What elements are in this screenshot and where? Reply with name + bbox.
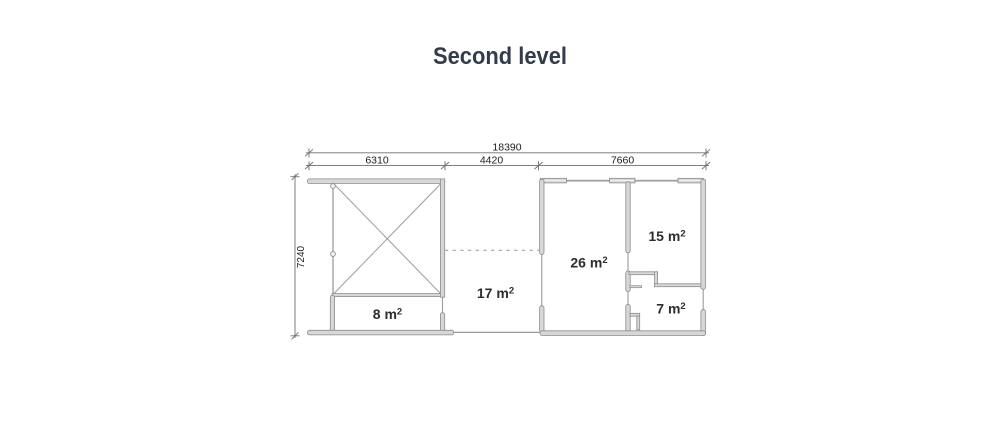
svg-text:18390: 18390 — [492, 142, 521, 154]
svg-text:7660: 7660 — [611, 154, 635, 166]
svg-text:6310: 6310 — [365, 154, 389, 166]
svg-text:7 m2: 7 m2 — [656, 301, 685, 317]
svg-text:8 m2: 8 m2 — [373, 306, 402, 322]
svg-text:26 m2: 26 m2 — [570, 255, 607, 271]
svg-text:Second level: Second level — [433, 43, 567, 70]
svg-text:15 m2: 15 m2 — [648, 228, 685, 244]
svg-text:7240: 7240 — [296, 245, 307, 268]
svg-text:17 m2: 17 m2 — [477, 285, 514, 301]
svg-text:4420: 4420 — [480, 154, 504, 166]
